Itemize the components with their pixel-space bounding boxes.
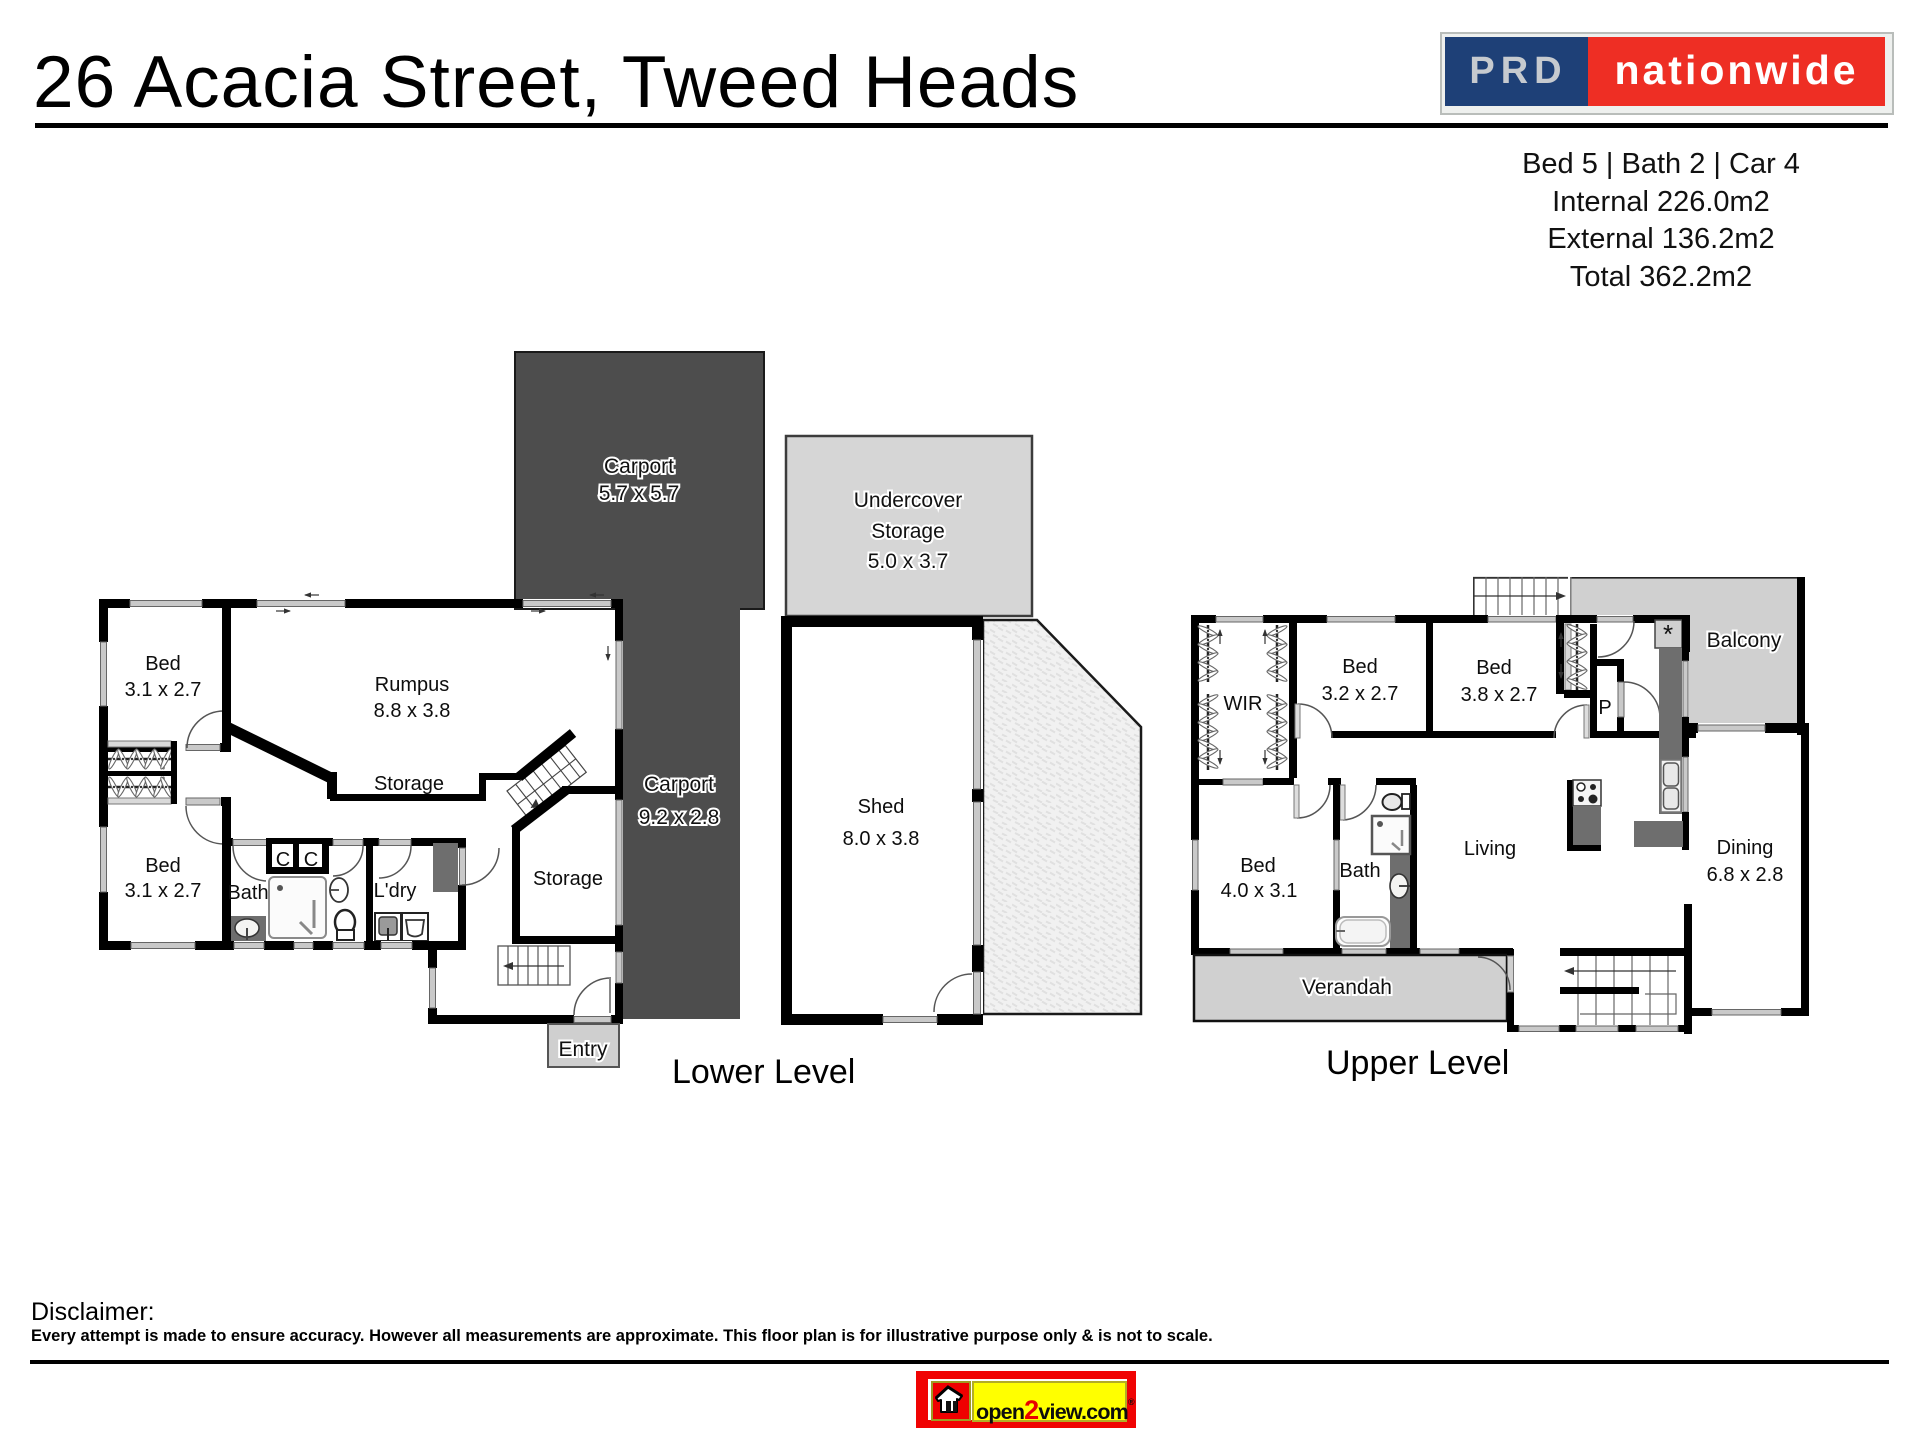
svg-text:Dining: Dining bbox=[1717, 837, 1774, 859]
svg-text:Bath: Bath bbox=[227, 882, 268, 904]
svg-text:*: * bbox=[1663, 619, 1673, 649]
svg-text:WIR: WIR bbox=[1224, 693, 1263, 715]
svg-text:Entry: Entry bbox=[558, 1038, 608, 1061]
svg-text:8.0 x 3.8: 8.0 x 3.8 bbox=[843, 828, 920, 850]
svg-text:C: C bbox=[276, 849, 290, 871]
svg-text:Carport: Carport bbox=[644, 773, 714, 796]
svg-text:3.1 x 2.7: 3.1 x 2.7 bbox=[125, 679, 202, 701]
svg-text:Undercover: Undercover bbox=[854, 489, 963, 512]
svg-text:6.8 x 2.8: 6.8 x 2.8 bbox=[1707, 864, 1784, 886]
svg-text:Bed: Bed bbox=[1240, 855, 1276, 877]
svg-text:Rumpus: Rumpus bbox=[375, 674, 449, 696]
svg-text:Shed: Shed bbox=[858, 796, 905, 818]
svg-text:4.0 x 3.1: 4.0 x 3.1 bbox=[1221, 880, 1298, 902]
svg-text:Storage: Storage bbox=[871, 520, 945, 543]
svg-text:8.8 x 3.8: 8.8 x 3.8 bbox=[374, 700, 451, 722]
svg-text:P: P bbox=[1598, 697, 1611, 719]
svg-text:C: C bbox=[304, 849, 318, 871]
svg-text:Lower Level: Lower Level bbox=[672, 1053, 855, 1091]
svg-text:5.7 x 5.7: 5.7 x 5.7 bbox=[599, 482, 680, 505]
svg-text:3.1 x 2.7: 3.1 x 2.7 bbox=[125, 880, 202, 902]
svg-text:3.2 x 2.7: 3.2 x 2.7 bbox=[1322, 683, 1399, 705]
svg-text:Storage: Storage bbox=[533, 868, 603, 890]
svg-text:Storage: Storage bbox=[374, 773, 444, 795]
svg-text:Bed: Bed bbox=[1342, 656, 1378, 678]
svg-text:Bed: Bed bbox=[145, 855, 181, 877]
svg-text:Living: Living bbox=[1464, 838, 1516, 860]
svg-text:Balcony: Balcony bbox=[1707, 629, 1782, 652]
svg-text:Upper Level: Upper Level bbox=[1326, 1044, 1509, 1082]
svg-text:3.8 x 2.7: 3.8 x 2.7 bbox=[1461, 684, 1538, 706]
svg-text:9.2 x 2.8: 9.2 x 2.8 bbox=[639, 806, 720, 829]
svg-text:Bed: Bed bbox=[145, 653, 181, 675]
svg-text:Bath: Bath bbox=[1339, 860, 1380, 882]
svg-text:Carport: Carport bbox=[604, 455, 674, 478]
svg-text:Bed: Bed bbox=[1476, 657, 1512, 679]
svg-text:L'dry: L'dry bbox=[374, 880, 417, 902]
svg-text:5.0 x 3.7: 5.0 x 3.7 bbox=[868, 550, 949, 573]
svg-text:Verandah: Verandah bbox=[1302, 976, 1392, 999]
